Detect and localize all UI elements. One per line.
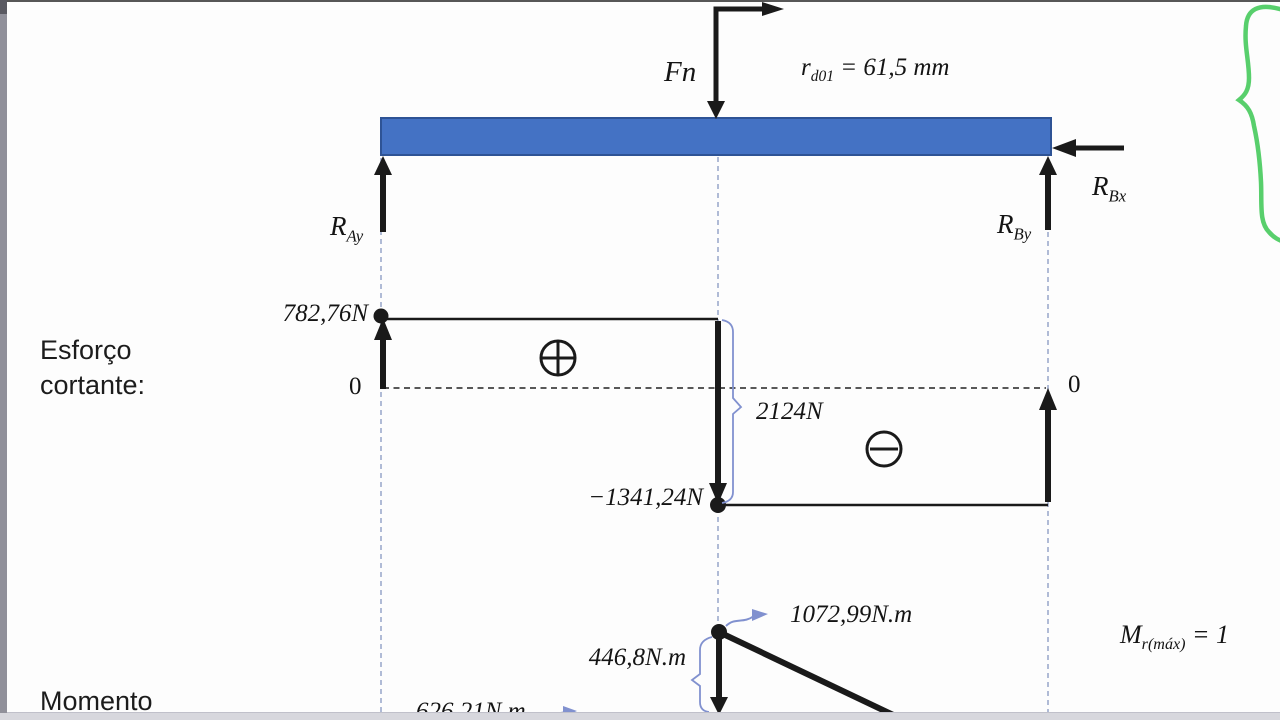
- slide-frame: Fn rd01 = 61,5 mm RAy RBy RBx Esforço co…: [0, 0, 1280, 720]
- radius-label: rd01 = 61,5 mm: [801, 54, 949, 86]
- beam: [381, 118, 1051, 155]
- moment-vertical-arrow: [710, 634, 728, 715]
- shear-max-value: 782,76N: [248, 300, 368, 328]
- shear-min-value: −1341,24N: [553, 484, 703, 512]
- moment-peak-leader-arrow: [726, 609, 768, 626]
- reaction-rbx-label: RBx: [1092, 171, 1126, 206]
- shear-right-arrow: [1039, 388, 1057, 502]
- moment-left-brace: [692, 637, 712, 712]
- plus-sign-icon: [541, 341, 575, 375]
- shear-drop-arrow: [709, 321, 727, 504]
- green-brace-annotation: [1239, 7, 1280, 242]
- shear-section-label: Esforço cortante:: [40, 333, 145, 403]
- left-edge-bar-cap: [0, 0, 7, 14]
- bottom-band: [0, 712, 1280, 720]
- shear-left-arrow: [374, 318, 392, 389]
- top-edge-line: [0, 0, 1280, 2]
- left-edge-bar: [0, 0, 7, 713]
- moment-max-formula: Mr(máx) = 1: [1120, 620, 1229, 654]
- shear-point-a-dot: [374, 309, 389, 324]
- force-fn-arrow: [707, 2, 784, 119]
- reaction-rby-arrow: [1039, 156, 1057, 230]
- reaction-ray-arrow: [374, 156, 392, 232]
- force-fn-label: Fn: [664, 56, 696, 89]
- reaction-ray-label: RAy: [330, 211, 363, 246]
- reaction-rbx-arrow: [1052, 139, 1124, 157]
- moment-peak-value: 1072,99N.m: [790, 601, 912, 629]
- shear-zero-left: 0: [349, 373, 362, 401]
- shear-point-load-dot: [710, 497, 726, 513]
- moment-left-value: 446,8N.m: [546, 644, 686, 672]
- diagram-canvas: [0, 0, 1280, 720]
- reaction-rby-label: RBy: [997, 209, 1031, 244]
- shear-zero-right: 0: [1068, 371, 1081, 399]
- shear-jump-value: 2124N: [756, 398, 823, 426]
- jump-brace: [722, 320, 741, 503]
- moment-descending-line: [721, 633, 908, 720]
- minus-sign-icon: [867, 432, 901, 466]
